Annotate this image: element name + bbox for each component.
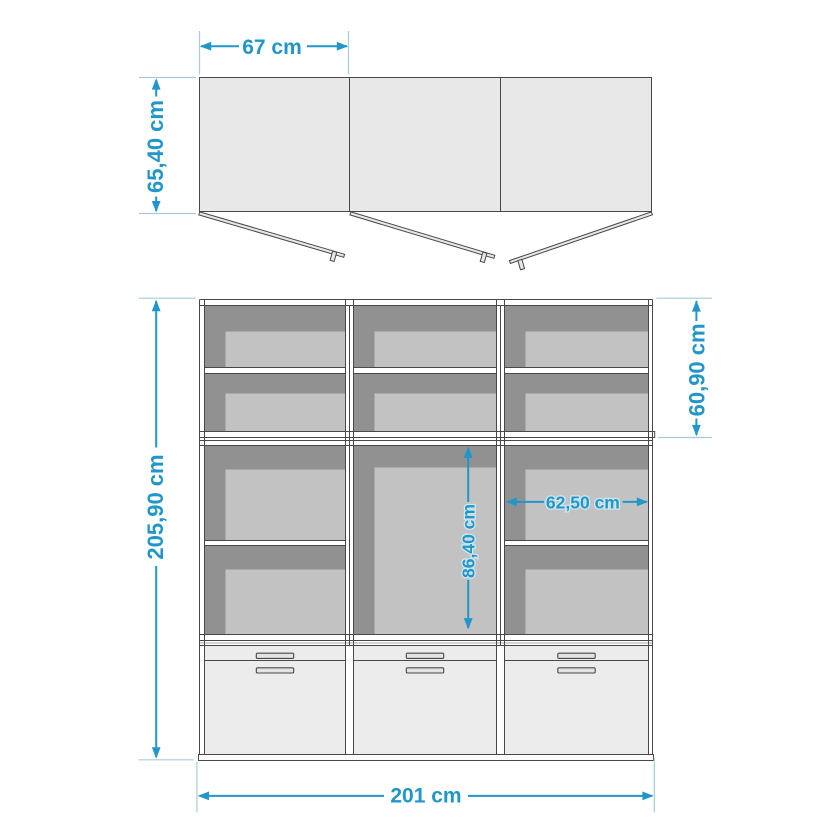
- svg-text:86,40 cm: 86,40 cm: [458, 504, 478, 578]
- svg-text:67 cm: 67 cm: [242, 36, 302, 59]
- svg-text:60,90 cm: 60,90 cm: [685, 323, 710, 416]
- svg-text:201 cm: 201 cm: [390, 785, 461, 808]
- svg-text:62,50 cm: 62,50 cm: [546, 492, 620, 512]
- svg-text:205,90 cm: 205,90 cm: [143, 454, 168, 559]
- svg-text:65,40 cm: 65,40 cm: [143, 100, 168, 193]
